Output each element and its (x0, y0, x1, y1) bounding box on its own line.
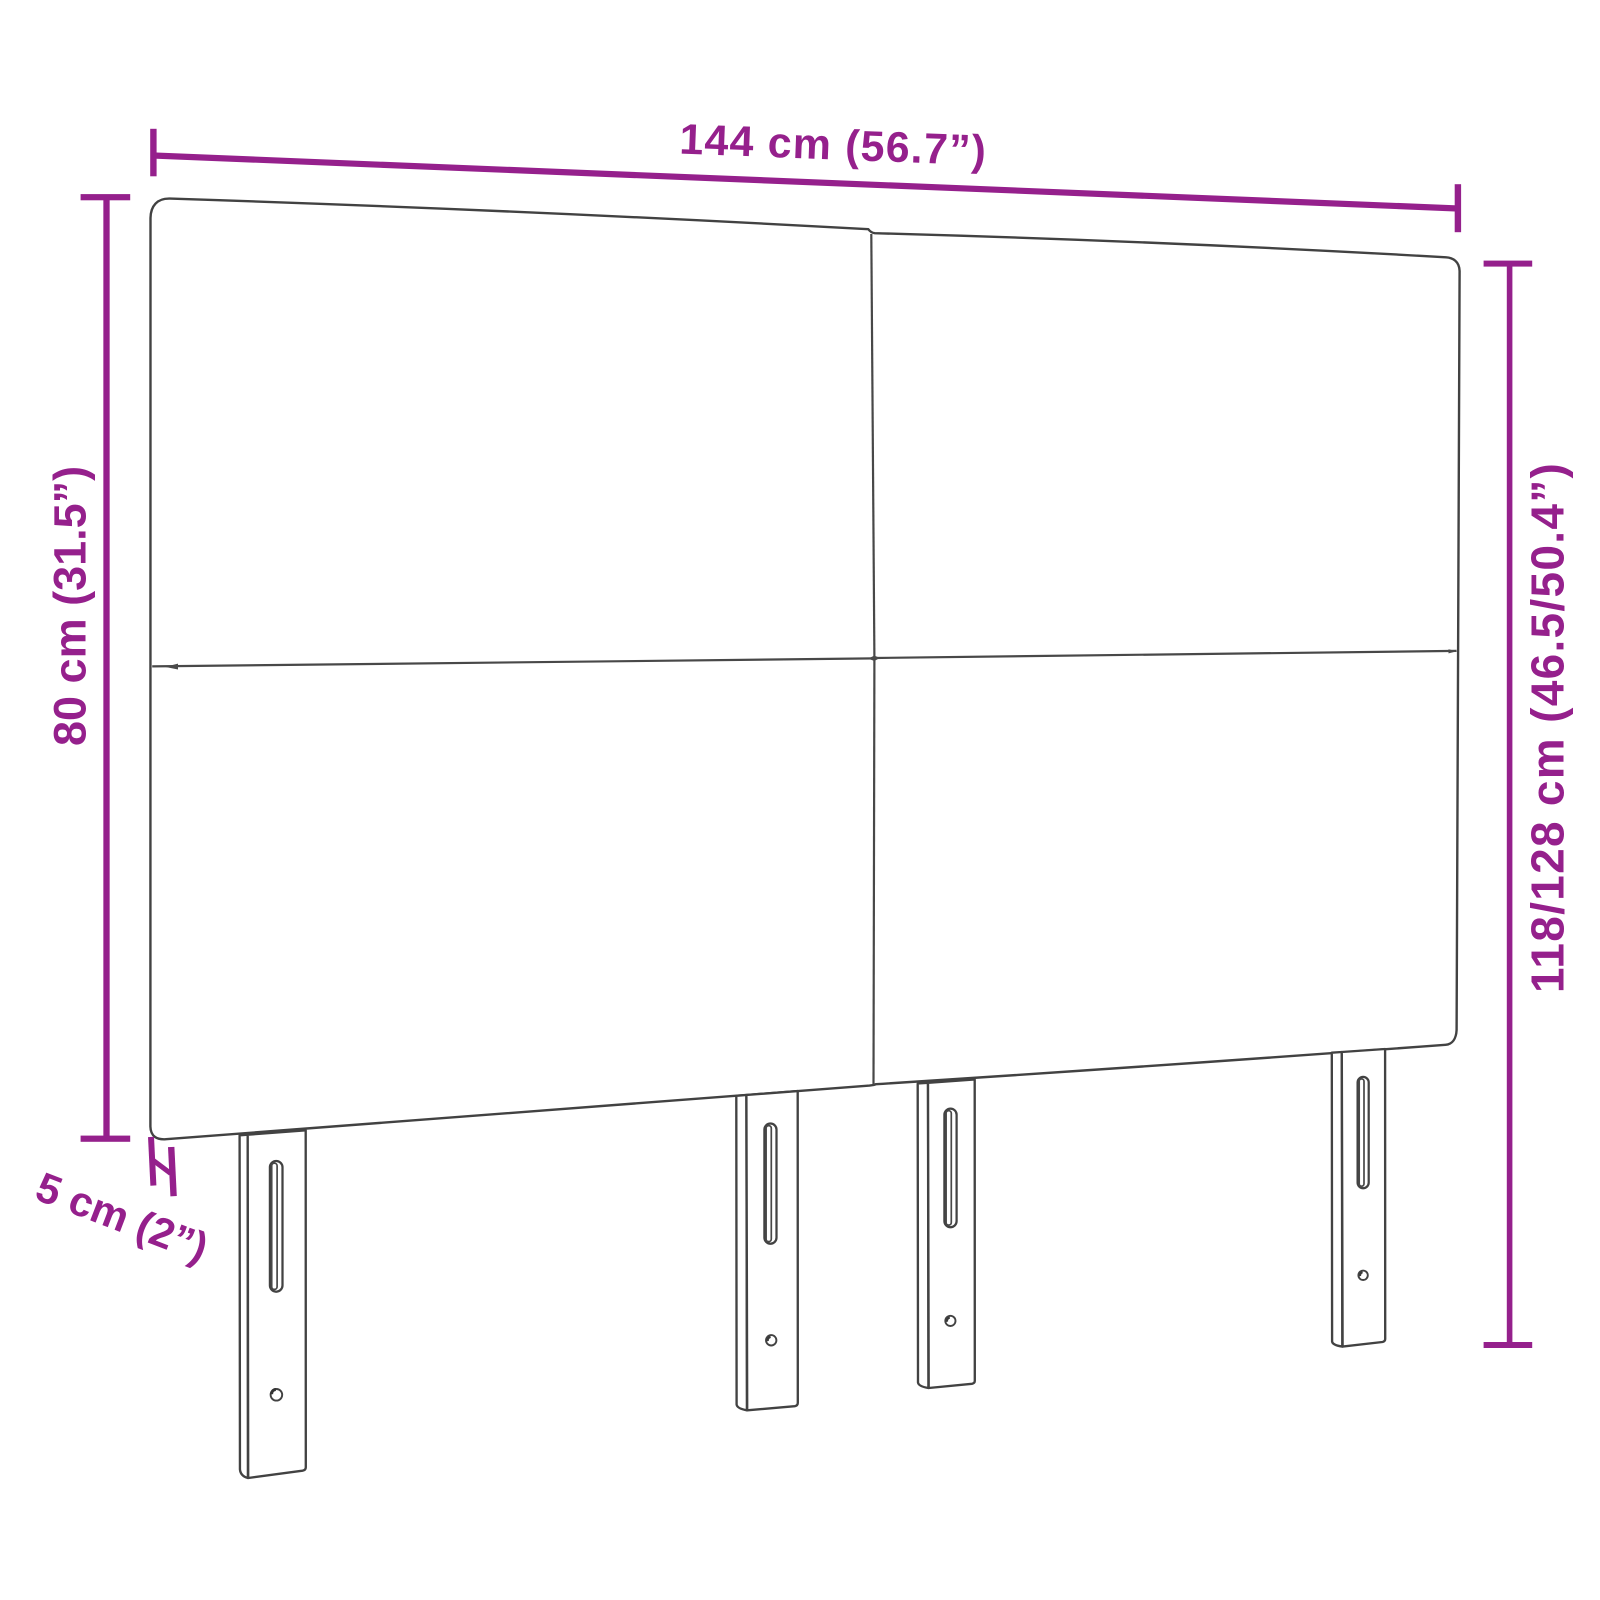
svg-text:5 cm (2”): 5 cm (2”) (30, 1163, 215, 1271)
svg-text:80 cm (31.5”): 80 cm (31.5”) (45, 466, 96, 746)
svg-text:144 cm (56.7”): 144 cm (56.7”) (679, 116, 988, 176)
svg-text:118/128 cm (46.5/50.4”): 118/128 cm (46.5/50.4”) (1522, 462, 1574, 993)
